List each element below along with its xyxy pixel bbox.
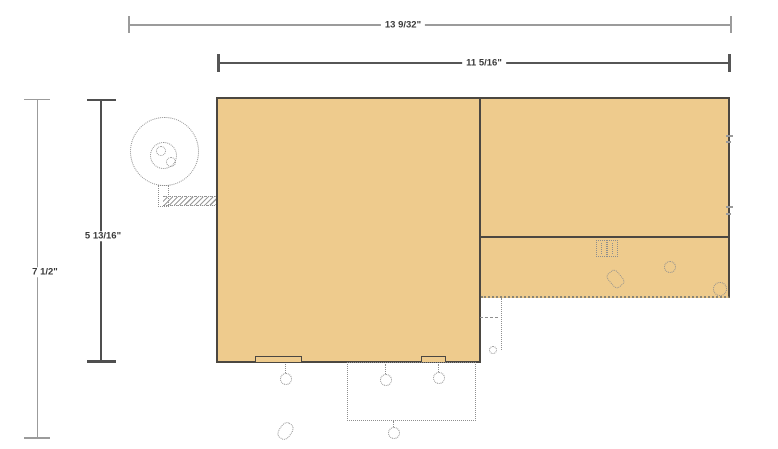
dim-overall-height-label: 7 1/2" [28, 267, 62, 277]
hub-hole-outline-a [156, 146, 166, 156]
dim-overall-width-tick-left [128, 16, 130, 33]
hole-outline-right-a [664, 261, 676, 273]
hole-outline-c [433, 372, 445, 384]
right-table-panel [481, 97, 730, 298]
pocket-outline-line [501, 298, 502, 350]
dim-overall-width-label: 13 9/32" [381, 20, 425, 30]
dim-table-width-tick-left [217, 54, 220, 72]
edge-mark-c [726, 206, 733, 208]
dim-table-width-label: 11 5/16" [462, 58, 506, 68]
hole-outline-right-corner [713, 282, 727, 296]
pocket-dash-line [480, 317, 498, 318]
machine-base-outline [347, 362, 476, 421]
hub-hole-outline-b [166, 157, 176, 167]
spool-pin-stem-b [612, 243, 613, 254]
dim-table-height-label: 5 13/16" [81, 231, 125, 241]
technical-drawing-canvas: 13 9/32" 11 5/16" 7 1/2" 5 13/16" [0, 0, 778, 449]
hole-stem-c [438, 364, 439, 372]
dim-table-width-tick-right [728, 54, 731, 72]
dim-table-height-tick-bottom [87, 360, 116, 363]
spool-pin-stem-a [601, 243, 602, 254]
left-table-panel [216, 97, 481, 363]
dim-overall-height-tick-bottom [24, 437, 50, 439]
dim-overall-width-line [129, 24, 731, 26]
dim-overall-height-tick-top [24, 99, 50, 101]
hole-oval-outline-left [275, 420, 296, 442]
hole-outline-a [280, 373, 292, 385]
bottom-edge-slot-a [255, 356, 302, 363]
dim-overall-width-tick-right [730, 16, 732, 33]
shaft-hatched-outline [163, 196, 217, 206]
edge-mark-b [726, 141, 731, 143]
panel-seam-line [481, 236, 728, 238]
dim-table-height-tick-top [87, 99, 116, 102]
edge-mark-a [726, 135, 733, 137]
hole-outline-b [380, 374, 392, 386]
edge-mark-d [726, 213, 731, 215]
hole-stem-b [385, 364, 386, 374]
needle-hole-outline [489, 346, 497, 354]
hole-stem-a [285, 364, 286, 373]
hole-outline-d [388, 427, 400, 439]
